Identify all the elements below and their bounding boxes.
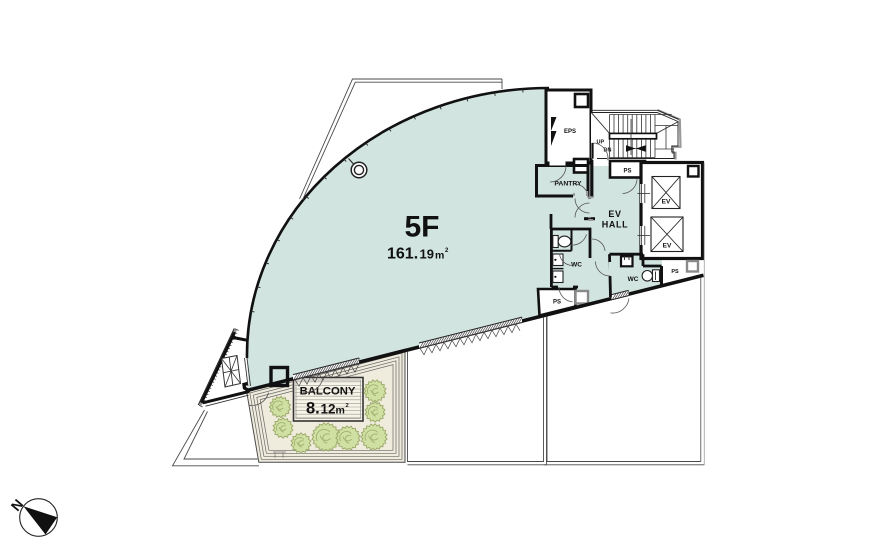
svg-text:PANTRY: PANTRY bbox=[554, 181, 582, 188]
svg-text:8.: 8. bbox=[306, 400, 320, 418]
svg-text:EV: EV bbox=[662, 199, 671, 206]
svg-text:UP: UP bbox=[597, 140, 605, 146]
svg-text:m: m bbox=[336, 405, 345, 417]
svg-text:N: N bbox=[8, 496, 27, 514]
svg-text:12: 12 bbox=[321, 402, 336, 417]
svg-text:EV: EV bbox=[663, 243, 672, 250]
svg-text:HALL: HALL bbox=[602, 220, 628, 230]
svg-text:m: m bbox=[435, 250, 444, 262]
svg-text:EV: EV bbox=[608, 209, 621, 219]
svg-text:EPS: EPS bbox=[564, 129, 576, 135]
svg-text:PS: PS bbox=[671, 269, 679, 275]
svg-text:PS: PS bbox=[553, 300, 561, 306]
svg-text:WC: WC bbox=[571, 262, 582, 269]
svg-text:19: 19 bbox=[420, 247, 434, 262]
svg-text:BALCONY: BALCONY bbox=[300, 385, 356, 397]
svg-text:WC: WC bbox=[628, 276, 639, 283]
svg-text:2: 2 bbox=[346, 403, 349, 409]
svg-text:5F: 5F bbox=[404, 211, 439, 244]
svg-text:161.: 161. bbox=[387, 246, 418, 263]
svg-text:PS: PS bbox=[623, 169, 631, 175]
